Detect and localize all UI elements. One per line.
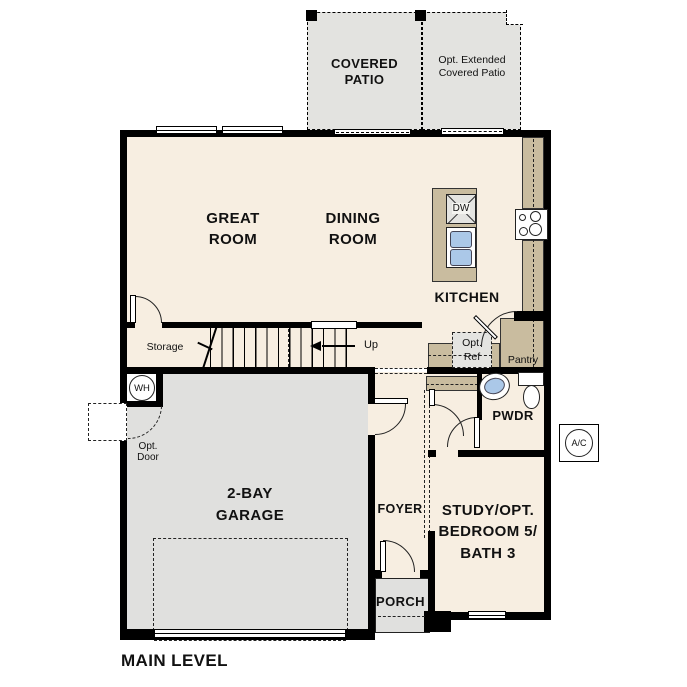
patio-post-left bbox=[306, 10, 317, 21]
pwdr-door-leaf bbox=[474, 417, 480, 448]
study-label: STUDY/OPT. BEDROOM 5/ BATH 3 bbox=[430, 499, 546, 565]
stair-treads bbox=[210, 328, 357, 368]
opt-hall-wall-b bbox=[375, 373, 427, 374]
wall-kitchen-stub bbox=[514, 311, 551, 321]
storage-door-arc bbox=[135, 296, 162, 323]
wall-landing-top bbox=[356, 322, 422, 328]
stair-arrow-head bbox=[310, 341, 321, 351]
ac-icon: A/C bbox=[565, 429, 593, 457]
wh-label: WH bbox=[134, 383, 150, 394]
burner-icon-4 bbox=[529, 223, 542, 236]
storage-door-leaf bbox=[130, 295, 136, 323]
window-great-room-2 bbox=[222, 126, 283, 134]
stair-railing bbox=[311, 321, 357, 329]
stair-dashed-tread bbox=[288, 329, 289, 367]
opt-door-arc bbox=[128, 405, 162, 439]
garage-entry-door-arc bbox=[375, 404, 406, 435]
front-door-arc bbox=[383, 540, 415, 572]
window-study bbox=[468, 611, 506, 619]
stair-arrow-line bbox=[322, 345, 355, 347]
porch-label: PORCH bbox=[376, 593, 425, 609]
main-level-title: MAIN LEVEL bbox=[121, 651, 271, 671]
opening-garage-door-side bbox=[368, 404, 375, 435]
foyer-label: FOYER bbox=[374, 501, 426, 516]
ac-label: A/C bbox=[571, 438, 586, 448]
opt-door-label: Opt. Door bbox=[129, 440, 167, 464]
dining-room-label: DINING ROOM bbox=[303, 205, 403, 252]
garage-door-zone bbox=[153, 538, 348, 631]
wall-stair-top bbox=[162, 322, 312, 328]
patio-corner-notch bbox=[506, 10, 523, 25]
shelf-rod-line bbox=[426, 384, 478, 385]
garage-label: 2-BAY GARAGE bbox=[190, 481, 310, 528]
porch-edge-dashed bbox=[378, 616, 425, 617]
opt-sliding-door bbox=[441, 128, 504, 135]
burner-icon-3 bbox=[530, 211, 541, 222]
floor-plan: WH DW A/C COVERED PATIO Opt. Extended Co… bbox=[0, 0, 687, 687]
closet-door-leaf bbox=[429, 389, 435, 406]
water-heater-icon: WH bbox=[129, 375, 155, 401]
wall-left bbox=[120, 130, 127, 640]
kitchen-label: KITCHEN bbox=[428, 288, 506, 305]
counter-dashed-line bbox=[533, 139, 534, 367]
sliding-door-patio bbox=[334, 129, 411, 135]
window-great-room-1 bbox=[156, 126, 217, 134]
opt-door-box bbox=[88, 403, 127, 441]
burner-icon-1 bbox=[519, 214, 526, 221]
sink-basin-1 bbox=[450, 231, 472, 248]
opt-hall-wall-a bbox=[375, 368, 427, 369]
great-room-label: GREAT ROOM bbox=[183, 205, 283, 252]
burner-icon-2 bbox=[519, 227, 528, 236]
garage-door bbox=[154, 629, 346, 638]
covered-patio-label: COVERED PATIO bbox=[311, 56, 418, 88]
toilet-bowl-icon bbox=[523, 385, 540, 409]
pwdr-label: PWDR bbox=[486, 407, 540, 423]
sink-basin-2 bbox=[450, 249, 472, 266]
garage-door-dashed bbox=[154, 640, 346, 641]
dw-label: DW bbox=[446, 201, 476, 216]
pwdr-door-arc bbox=[447, 417, 477, 447]
pantry-label: Pantry bbox=[502, 353, 544, 366]
storage-label: Storage bbox=[141, 340, 189, 353]
patio-post-right bbox=[415, 10, 426, 21]
opening-study-entry bbox=[436, 450, 458, 457]
up-label: Up bbox=[358, 338, 384, 352]
toilet-tank-icon bbox=[518, 372, 544, 386]
opt-extended-patio-label: Opt. Extended Covered Patio bbox=[425, 53, 519, 81]
opt-ref-label: Opt. Ref bbox=[452, 334, 492, 366]
garage-entry-door-leaf bbox=[374, 398, 408, 404]
wall-garage-top bbox=[120, 367, 375, 374]
front-door-leaf bbox=[380, 541, 386, 572]
